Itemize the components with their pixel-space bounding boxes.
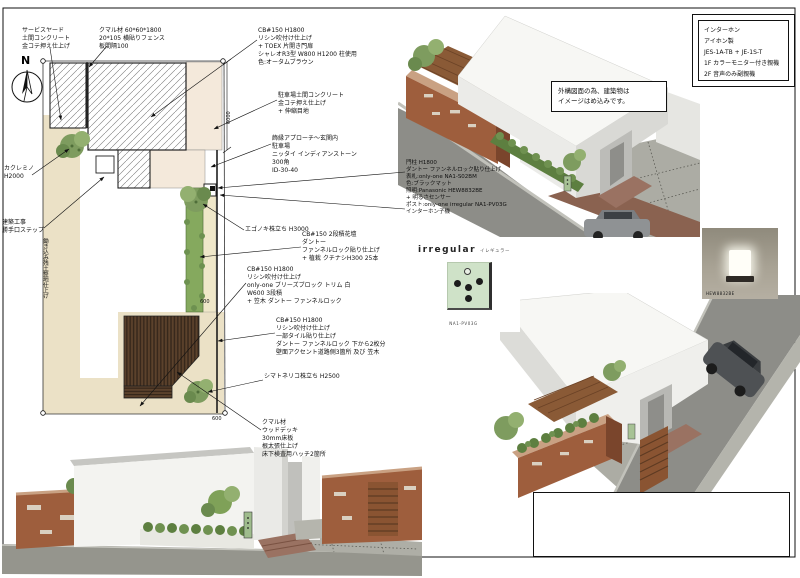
render-bottom-left xyxy=(2,447,422,576)
label-gate-post: 門柱 H1800 ダントー ファンネルロック貼り仕上げ 表札:only-one … xyxy=(406,160,507,216)
interphone-spec-box: インターホン アイホン製 JES-1A-TB + JE-1S-T 1F カラーモ… xyxy=(692,14,795,87)
label-breeze-wall: CB#150 H1800 リシン吹付け仕上げ only-one ブリーズブロック… xyxy=(247,266,350,306)
dimension-6000: 6000 xyxy=(226,111,232,124)
irregular-dot xyxy=(465,284,472,291)
parking-concrete-area xyxy=(186,62,222,150)
irregular-dot xyxy=(465,295,472,302)
label-egonoki: エゴノキ株立ち H3000 xyxy=(245,226,309,234)
label-kakuremino: カクレミノ H2000 xyxy=(4,165,34,181)
irregular-kana: イレギュラー xyxy=(480,249,510,254)
north-label: N xyxy=(21,54,30,67)
irregular-dot-light xyxy=(464,268,471,275)
label-parking: 駐車場土間コンクリート 金コテ押え仕上げ + 伸縮目地 xyxy=(278,92,344,116)
label-shimatoneriko: シマトネリコ株立ち H2500 xyxy=(264,373,340,381)
dimension-600-top: 600 xyxy=(200,299,210,305)
mailbox-post-br xyxy=(628,424,635,439)
gate-light-caption: HEW8832BE xyxy=(706,291,735,296)
product-card-gate-light: HEW8832BE xyxy=(702,228,778,299)
irregular-dot xyxy=(476,278,483,285)
render-note-box: 外構図面の為、建築物は イメージはめ込みです。 xyxy=(551,81,667,112)
site-plan xyxy=(12,59,231,416)
dimension-600-bottom: 600 xyxy=(212,416,222,422)
gate-light-base xyxy=(726,276,754,282)
kitchen-step-square xyxy=(96,156,114,173)
gate-light-lamp xyxy=(729,250,751,276)
label-service-yard: サービスヤード 土間コンクリート 金コテ押え仕上げ xyxy=(22,27,70,51)
north-arrow-icon xyxy=(12,70,42,102)
design-sheet: N サービスヤード 土間コンクリート 金コテ押え仕上げ クマル材 60*60*1… xyxy=(0,0,800,578)
label-ground-soil: 鋤き込み残土整地仕上げ xyxy=(41,238,49,358)
label-wood-deck: クマル材 ウッドデッキ 30mm床板 根太張仕上げ 床下検査用ハッチ2箇所 xyxy=(262,419,326,459)
label-kumaru-fence: クマル材 60*60*1800 20*105 横貼りフェンス 板間隔100 xyxy=(99,27,165,51)
product-card-irregular: irregularイレギュラー NA1-PV03G xyxy=(407,240,520,332)
irregular-title: irregularイレギュラー xyxy=(418,245,510,255)
irregular-dot xyxy=(454,280,461,287)
label-gate-block: CB#150 H1800 リシン吹付け仕上げ + TOEX 片開き門扉 シャレオ… xyxy=(258,27,357,67)
irregular-faceplate xyxy=(447,262,492,310)
label-kitchen-step: 建築工事 勝手口ステップ xyxy=(2,219,44,235)
irregular-caption: NA1-PV03G xyxy=(407,321,520,326)
wood-fence-bl xyxy=(368,482,398,536)
mailbox-post-bl xyxy=(244,512,252,538)
label-flower-bed: CB#150 2段積花壇 ダントー ファンネルロック貼り仕上げ + 植栽 クチナ… xyxy=(302,231,380,263)
label-approach: 飾縁アプローチ～玄関内 駐車場 ニッタイ インディアンストーン 300角 ID-… xyxy=(272,135,357,175)
interphone-spec-text: インターホン アイホン製 JES-1A-TB + JE-1S-T 1F カラーモ… xyxy=(698,20,789,81)
approach-area xyxy=(150,150,205,188)
label-tile-wall: CB#150 H1800 リシン吹付け仕上げ 一部タイル貼り仕上げ ダントー フ… xyxy=(276,317,386,357)
title-block xyxy=(533,492,790,557)
render-bottom-right xyxy=(494,290,800,520)
